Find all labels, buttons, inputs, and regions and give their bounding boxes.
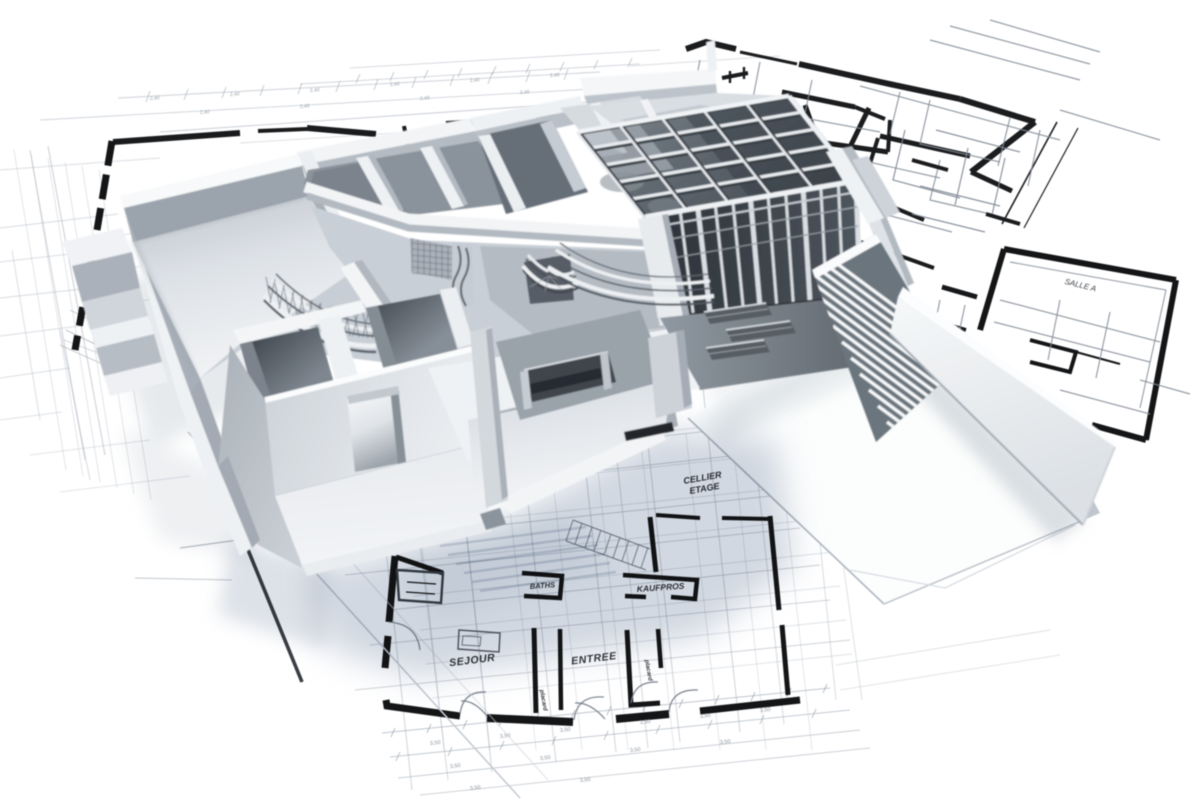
svg-text:3,50: 3,50 xyxy=(760,707,771,714)
svg-text:2,40: 2,40 xyxy=(300,103,310,110)
svg-text:3,50: 3,50 xyxy=(580,777,591,784)
svg-text:3,50: 3,50 xyxy=(560,727,571,734)
svg-text:3,50: 3,50 xyxy=(430,740,441,747)
svg-text:2,40: 2,40 xyxy=(420,95,430,102)
svg-text:2,40: 2,40 xyxy=(520,89,530,96)
svg-text:2,40: 2,40 xyxy=(550,72,560,79)
svg-text:3,50: 3,50 xyxy=(540,755,551,762)
svg-text:2,40: 2,40 xyxy=(230,91,240,98)
svg-text:3,50: 3,50 xyxy=(720,739,731,746)
svg-text:2,40: 2,40 xyxy=(470,77,480,84)
svg-text:3,50: 3,50 xyxy=(450,763,461,770)
svg-text:3,50: 3,50 xyxy=(630,747,641,754)
svg-text:3,50: 3,50 xyxy=(470,785,481,792)
svg-text:2,40: 2,40 xyxy=(390,81,400,88)
svg-text:2,40: 2,40 xyxy=(310,87,320,94)
svg-text:3,50: 3,50 xyxy=(640,719,651,726)
svg-text:2,40: 2,40 xyxy=(150,95,160,102)
svg-text:3,50: 3,50 xyxy=(700,713,711,720)
svg-text:2,40: 2,40 xyxy=(200,109,210,116)
